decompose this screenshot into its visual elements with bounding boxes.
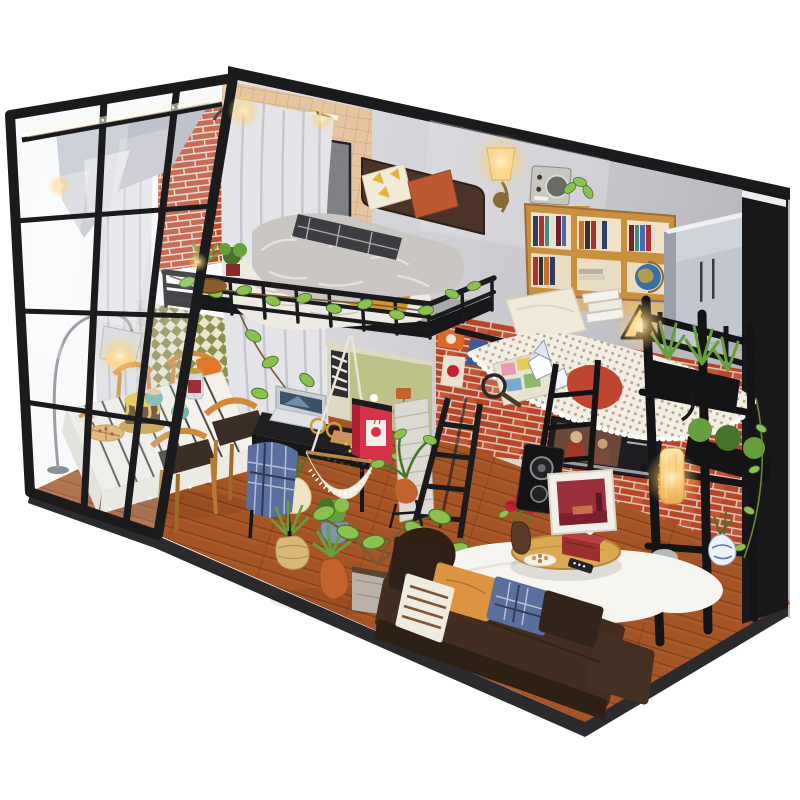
- dollhouse-illustration: VE: [0, 0, 800, 800]
- product-photo: VE: [0, 0, 800, 800]
- cookie-plate: [524, 554, 556, 566]
- zebra-print: [331, 350, 348, 398]
- framed-picture: [548, 470, 616, 534]
- wall-radio: [530, 166, 571, 206]
